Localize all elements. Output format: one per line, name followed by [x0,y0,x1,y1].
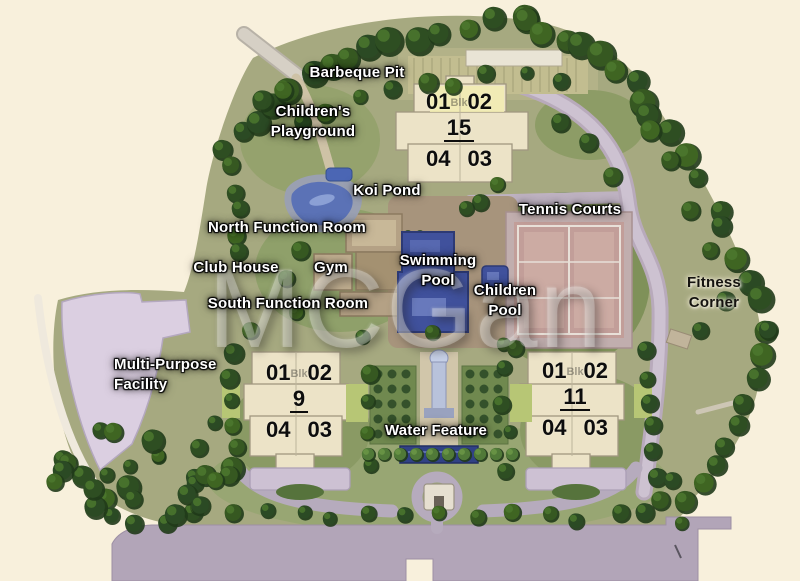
block-9-building [244,352,348,472]
children-pool-shape [482,266,508,292]
site-plan: MCGan Barbeque PitChildren'sPlaygroundKo… [0,0,800,581]
block-11-building [520,352,624,472]
block-11-planter [552,484,600,500]
site-plan-graphic [0,0,800,581]
block-9-planter [276,484,324,500]
playground-equipment [326,168,352,181]
tennis-courts-shape [506,212,632,348]
